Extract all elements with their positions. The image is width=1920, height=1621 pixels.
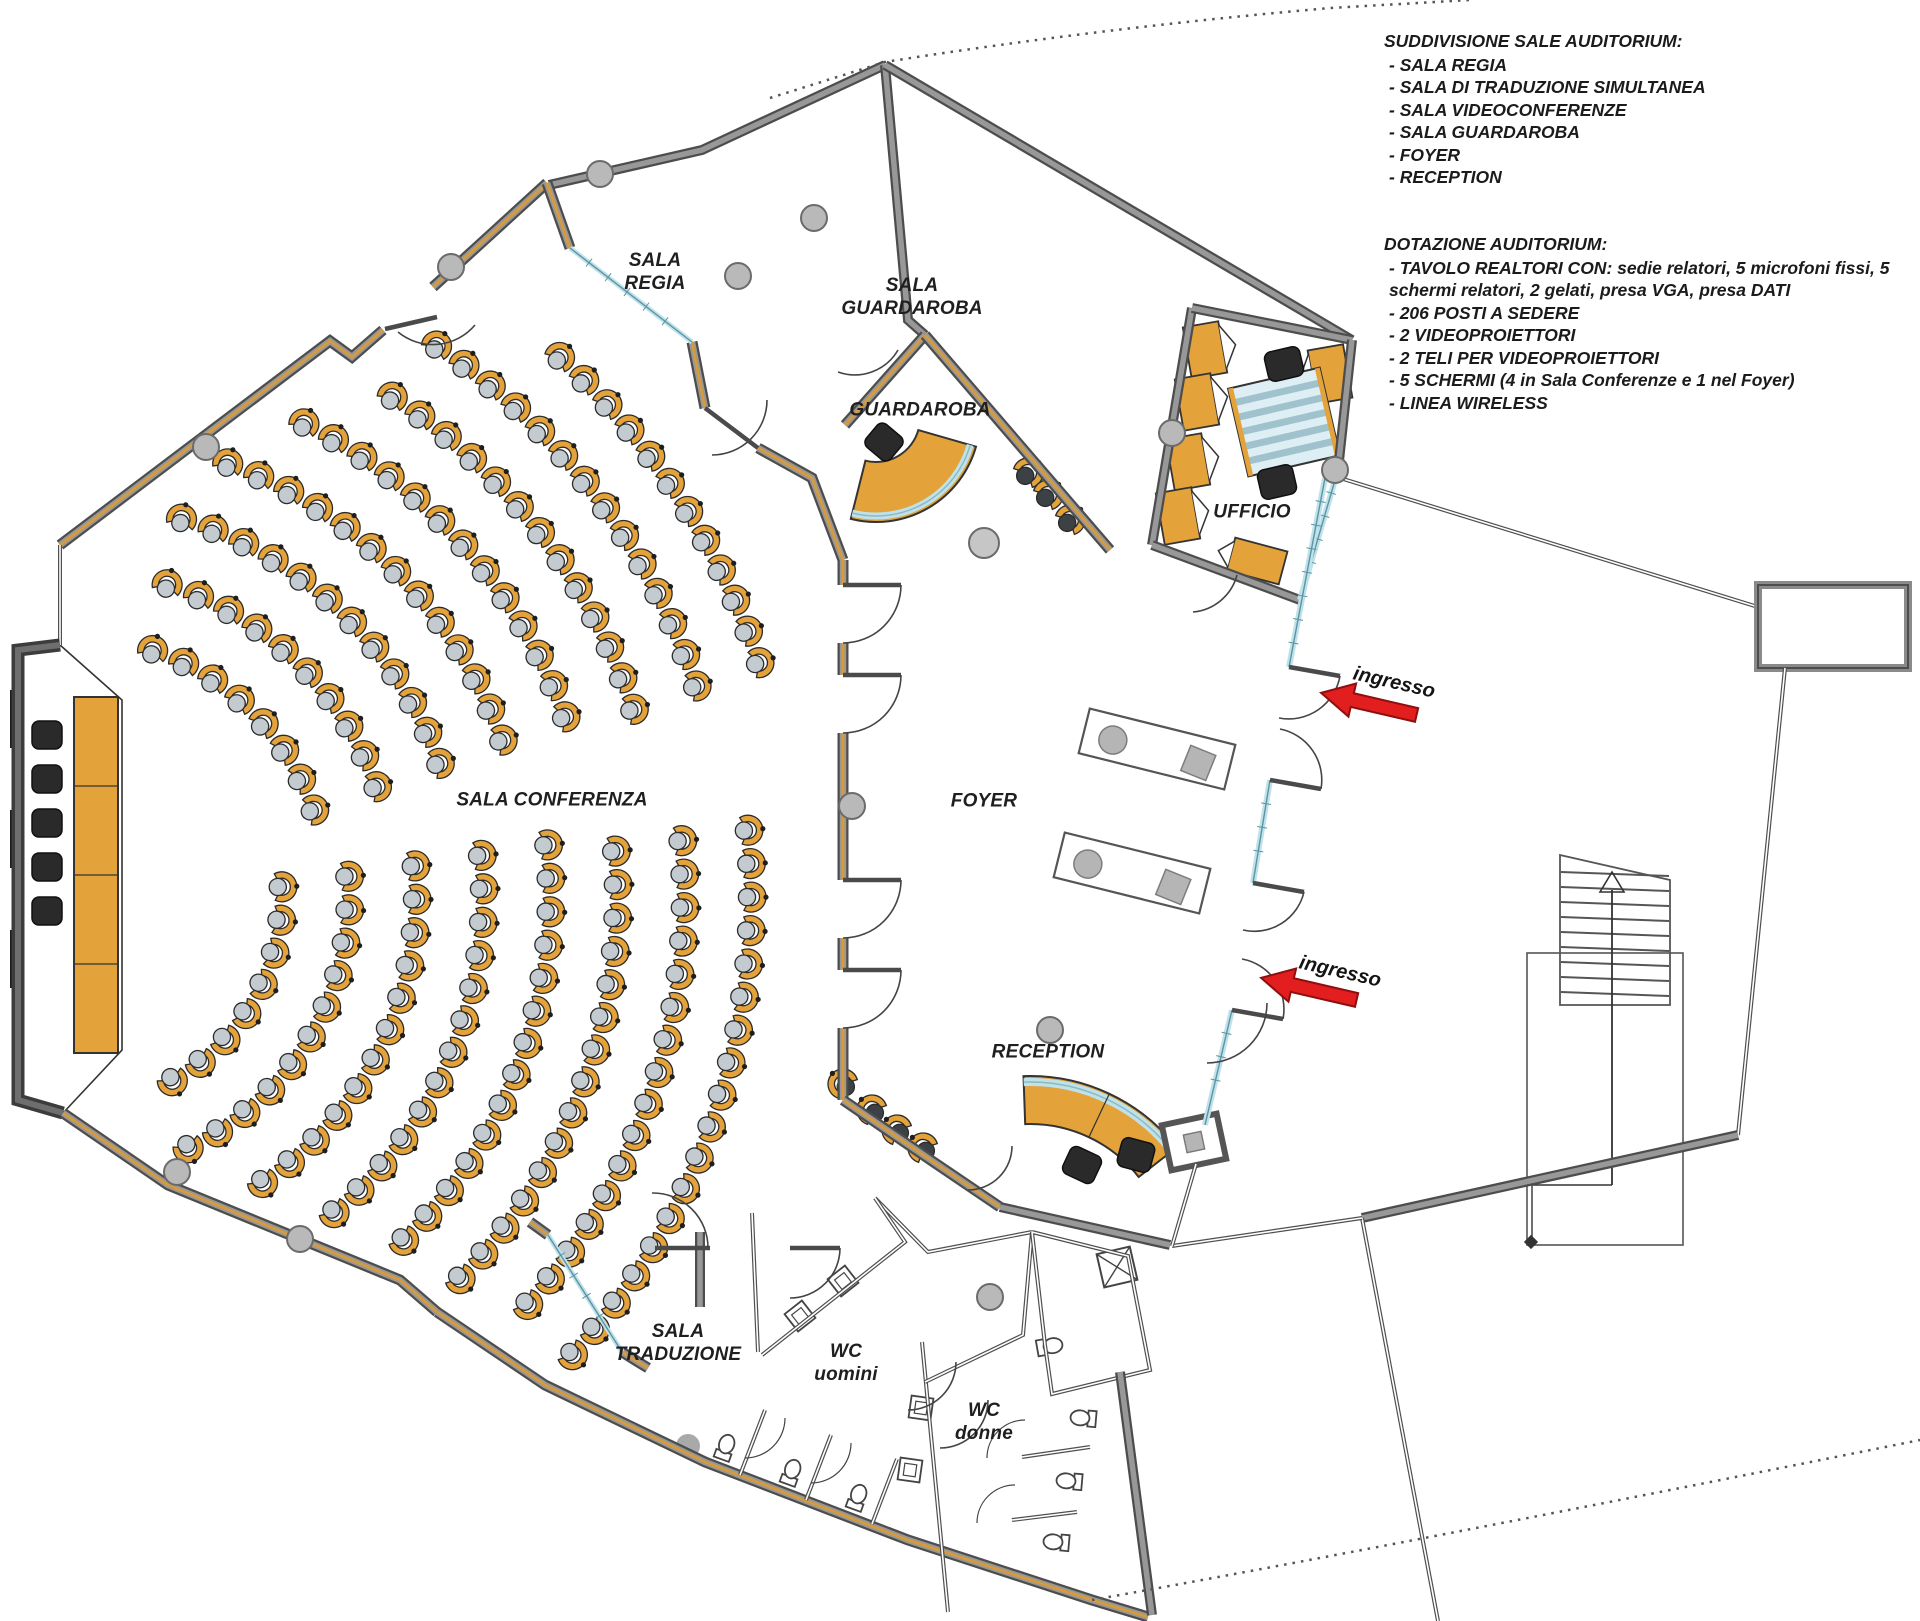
foyer-bench <box>1079 709 1236 790</box>
legend-suddivisione-heading: SUDDIVISIONE SALE AUDITORIUM: <box>1384 30 1918 53</box>
audience-chair <box>667 634 706 673</box>
audience-chair <box>679 666 717 704</box>
audience-chair <box>693 1109 732 1147</box>
floor-plan-page: SUDDIVISIONE SALE AUDITORIUM: - SALA REG… <box>0 0 1920 1621</box>
sink <box>898 1458 923 1483</box>
legend-item: - TAVOLO REALTORI CON: sedie relatori, 5… <box>1384 257 1918 302</box>
office-chair <box>32 721 62 749</box>
legend-item: - 5 SCHERMI (4 in Sala Conferenze e 1 ne… <box>1384 369 1918 392</box>
audience-chair <box>335 894 367 926</box>
toilet <box>846 1482 870 1511</box>
audience-chair <box>651 1023 687 1059</box>
office-chair <box>32 853 62 881</box>
audience-chair <box>269 871 300 902</box>
toilet <box>780 1457 804 1486</box>
audience-chair <box>485 720 524 758</box>
column <box>1322 457 1348 483</box>
toilet <box>1043 1533 1070 1551</box>
legend-item: - SALA REGIA <box>1384 54 1918 77</box>
entrance-arrows <box>1257 676 1420 1016</box>
audience-chair <box>464 939 498 973</box>
audience-chair <box>258 935 295 972</box>
column <box>977 1284 1003 1310</box>
audience-chairs <box>134 323 780 1378</box>
legend-item: - SALA VIDEOCONFERENZE <box>1384 99 1918 122</box>
legend-item: - RECEPTION <box>1384 166 1918 189</box>
ingresso-arrow-1 <box>1317 676 1420 731</box>
audience-chair <box>681 1139 720 1178</box>
audience-chair <box>533 929 566 962</box>
audience-chair <box>587 1000 623 1036</box>
audience-chair <box>422 743 461 781</box>
audience-chair <box>520 994 557 1030</box>
column <box>801 205 827 231</box>
audience-chair <box>195 508 234 547</box>
audience-chair <box>400 916 433 949</box>
audience-chair <box>617 690 655 728</box>
audience-chair <box>537 896 568 927</box>
ingresso-arrow-2 <box>1257 961 1360 1016</box>
audience-chair <box>603 903 634 934</box>
audience-chair <box>335 860 367 892</box>
audience-chair <box>722 1013 758 1048</box>
audience-chair <box>149 564 187 602</box>
audience-chair <box>671 859 702 890</box>
office-chair <box>32 897 62 925</box>
audience-chair <box>595 968 630 1003</box>
audience-chair <box>384 980 422 1018</box>
audience-chair <box>447 1003 485 1041</box>
column <box>193 434 219 460</box>
toilet <box>714 1432 738 1461</box>
audience-chair <box>567 1063 606 1102</box>
audience-chair <box>729 980 763 1014</box>
audience-chair <box>457 971 493 1007</box>
toilet <box>1056 1472 1083 1490</box>
audience-chair <box>469 906 501 938</box>
legend-item: - SALA GUARDAROBA <box>1384 121 1918 144</box>
audience-chair <box>604 869 635 900</box>
column <box>725 263 751 289</box>
audience-chair <box>360 767 398 805</box>
office-chair <box>1060 1144 1103 1186</box>
column <box>164 1159 190 1185</box>
audience-chair <box>734 814 767 847</box>
audience-chair <box>669 925 701 957</box>
column <box>1159 420 1185 446</box>
audience-chair <box>658 990 693 1025</box>
column <box>587 161 613 187</box>
audience-chair <box>393 949 429 985</box>
audience-chair <box>730 611 769 650</box>
toilet <box>1070 1409 1097 1427</box>
legend-item: - LINEA WIRELESS <box>1384 392 1918 415</box>
audience-chair <box>737 915 769 947</box>
audience-chair <box>403 884 434 914</box>
audience-chair <box>733 948 766 981</box>
audience-chair <box>537 863 568 894</box>
audience-chair <box>738 882 768 912</box>
audience-chair <box>164 498 201 535</box>
column <box>839 793 865 819</box>
office-chair <box>32 809 62 837</box>
stage-area <box>10 645 122 1113</box>
audience-chair <box>528 961 563 996</box>
audience-chair <box>605 657 644 696</box>
audience-chair <box>321 958 359 995</box>
stairs <box>1524 855 1683 1249</box>
office-chair <box>32 765 62 793</box>
audience-chair <box>664 958 698 992</box>
right-structure <box>1758 585 1908 668</box>
column <box>1037 1017 1063 1043</box>
audience-chair <box>668 824 701 857</box>
column <box>287 1226 313 1252</box>
audience-chair <box>641 1054 679 1091</box>
reception-desk <box>1024 1076 1177 1186</box>
audience-chair <box>601 835 634 867</box>
legend-item: - 2 TELI PER VIDEOPROIETTORI <box>1384 347 1918 370</box>
audience-chair <box>266 904 300 937</box>
legend-dotazione: DOTAZIONE AUDITORIUM: - TAVOLO REALTORI … <box>1384 233 1918 414</box>
audience-chair <box>330 926 365 961</box>
meeting-table <box>1228 368 1340 477</box>
legend-item: - FOYER <box>1384 144 1918 167</box>
audience-chair <box>435 1034 474 1073</box>
toilet <box>1036 1336 1064 1356</box>
audience-chair <box>617 1117 657 1156</box>
legend-item: - 2 VIDEOPROIETTORI <box>1384 324 1918 347</box>
audience-chair <box>704 1077 742 1115</box>
legend-item: - SALA DI TRADUZIONE SIMULTANEA <box>1384 76 1918 99</box>
audience-chair <box>470 874 501 904</box>
audience-chair <box>134 629 172 667</box>
audience-chair <box>533 828 566 861</box>
audience-chair <box>510 1025 548 1063</box>
audience-chair <box>578 1032 615 1069</box>
column <box>438 254 464 280</box>
audience-chair <box>671 892 702 923</box>
audience-chair <box>714 1045 751 1082</box>
entrance-lobby-box <box>1162 1114 1226 1171</box>
audience-chair <box>297 790 335 828</box>
legend-suddivisione: SUDDIVISIONE SALE AUDITORIUM: - SALA REG… <box>1384 30 1918 189</box>
audience-chair <box>401 849 434 881</box>
audience-chair <box>600 935 633 968</box>
legend-item: - 206 POSTI A SEDERE <box>1384 302 1918 325</box>
guardaroba-desk <box>851 420 976 522</box>
column <box>969 528 999 558</box>
audience-chair <box>742 643 780 681</box>
audience-chair <box>548 697 587 735</box>
foyer-bench <box>1054 833 1211 914</box>
audience-chair <box>467 839 500 872</box>
audience-chair <box>498 1056 537 1095</box>
audience-chair <box>737 848 769 879</box>
legend-dotazione-heading: DOTAZIONE AUDITORIUM: <box>1384 233 1918 256</box>
audience-chair <box>630 1086 669 1124</box>
